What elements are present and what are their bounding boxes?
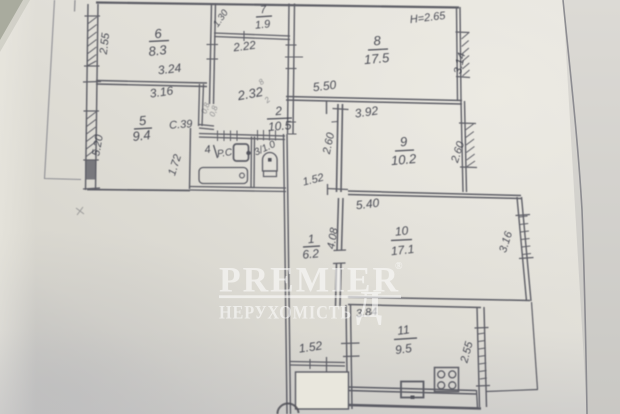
svg-text:5.50: 5.50 <box>312 78 337 95</box>
svg-text:11: 11 <box>396 322 410 338</box>
svg-text:НЕРУХОМІСТЬ: НЕРУХОМІСТЬ <box>219 303 352 324</box>
svg-text:8.3: 8.3 <box>148 42 168 59</box>
svg-text:1: 1 <box>307 232 315 247</box>
svg-text:3.24: 3.24 <box>157 61 182 78</box>
svg-text:5.40: 5.40 <box>355 196 380 213</box>
svg-text:Д: Д <box>356 284 382 326</box>
svg-text:®: ® <box>395 261 403 272</box>
svg-text:С.39: С.39 <box>169 118 193 132</box>
svg-text:10.2: 10.2 <box>390 151 417 168</box>
svg-text:9.5: 9.5 <box>394 341 413 357</box>
svg-text:10: 10 <box>394 223 409 238</box>
svg-text:17.1: 17.1 <box>390 242 415 258</box>
svg-text:1.9: 1.9 <box>254 18 270 32</box>
svg-text:9.4: 9.4 <box>132 127 152 144</box>
svg-text:9: 9 <box>399 134 408 150</box>
svg-text:17.5: 17.5 <box>363 50 390 67</box>
svg-text:10.5: 10.5 <box>267 118 292 134</box>
svg-text:Р.С: Р.С <box>216 147 233 160</box>
svg-text:2: 2 <box>274 104 283 119</box>
